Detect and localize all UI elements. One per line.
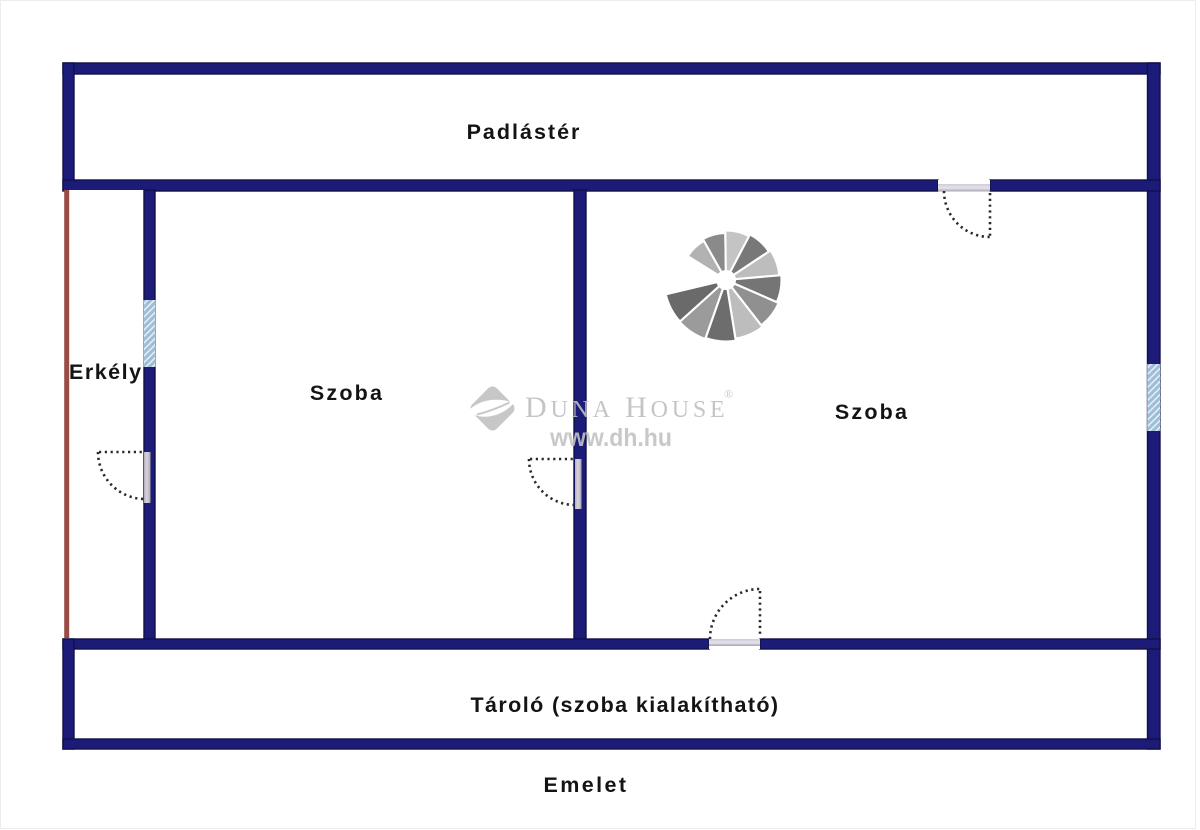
svg-text:Erkély: Erkély bbox=[69, 360, 143, 384]
svg-text:Emelet: Emelet bbox=[544, 773, 629, 797]
svg-text:Padlástér: Padlástér bbox=[467, 120, 582, 144]
svg-text:www.dh.hu: www.dh.hu bbox=[549, 424, 672, 452]
svg-text:®: ® bbox=[724, 387, 733, 401]
svg-text:Szoba: Szoba bbox=[310, 381, 384, 405]
svg-text:Szoba: Szoba bbox=[835, 400, 909, 424]
svg-text:Tároló (szoba kialakítható): Tároló (szoba kialakítható) bbox=[471, 693, 780, 717]
